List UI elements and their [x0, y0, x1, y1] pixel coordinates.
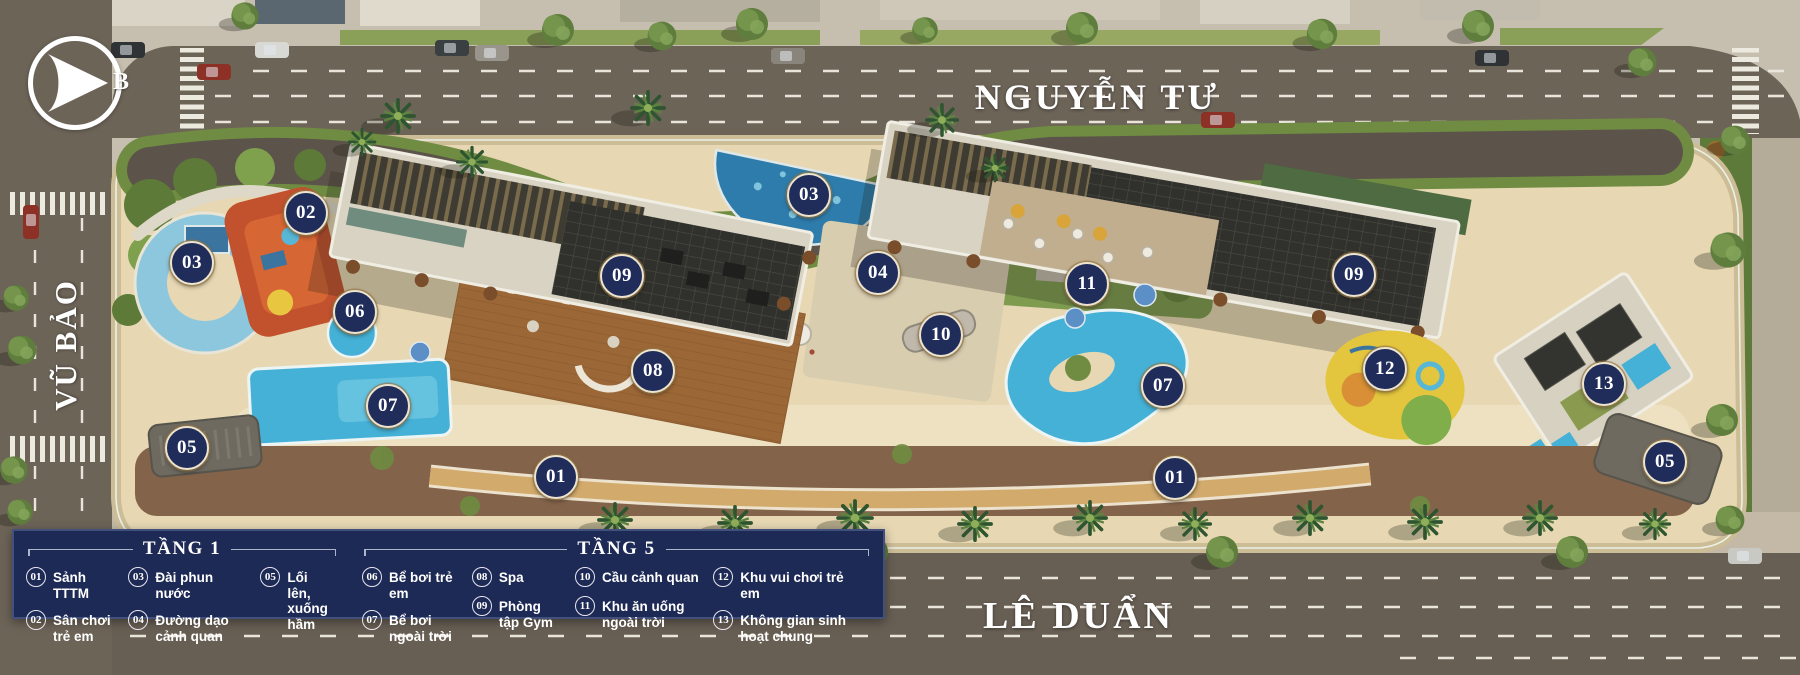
legend-item-number: 10	[575, 567, 595, 587]
legend-item-03: 03Đài phun nước	[128, 567, 247, 601]
street-label-nguyen-tu: NGUYỄN TƯ	[975, 76, 1219, 118]
parked-car	[255, 42, 289, 58]
legend-panel: TẦNG 101Sảnh TTTM02Sân chơi trẻ em03Đài …	[12, 529, 885, 619]
parked-car	[23, 205, 39, 239]
street-label-le-duan: LÊ DUẨN	[983, 594, 1174, 638]
legend-item-number: 11	[575, 596, 595, 616]
legend-item-01: 01Sảnh TTTM	[26, 567, 115, 601]
compass: B	[28, 36, 122, 130]
plan-marker-13[interactable]: 13	[1582, 362, 1626, 406]
legend-item-number: 07	[362, 610, 382, 630]
plan-marker-08[interactable]: 08	[631, 349, 675, 393]
plan-marker-03[interactable]: 03	[787, 173, 831, 217]
legend-item-label: Cầu cảnh quan	[602, 567, 699, 586]
plan-marker-10[interactable]: 10	[919, 313, 963, 357]
plan-marker-07[interactable]: 07	[1141, 364, 1185, 408]
legend-floor-title: TẦNG 1	[143, 538, 221, 560]
plan-marker-06[interactable]: 06	[333, 290, 377, 334]
legend-item-label: Bể bơi trẻ em	[389, 567, 459, 601]
parked-car	[1475, 50, 1509, 66]
legend-item-number: 01	[26, 567, 46, 587]
legend-title-rule	[666, 549, 869, 550]
legend-floor-1: TẦNG 101Sảnh TTTM02Sân chơi trẻ em03Đài …	[14, 531, 350, 617]
parked-car	[475, 45, 509, 61]
parked-car	[771, 48, 805, 64]
plan-marker-01[interactable]: 01	[534, 455, 578, 499]
plan-marker-03[interactable]: 03	[170, 241, 214, 285]
legend-item-label: Không gian sinh hoạt chung	[740, 610, 862, 644]
legend-item-label: Bể bơi ngoài trời	[389, 610, 459, 644]
legend-title-rule	[28, 549, 133, 550]
parked-car	[1728, 548, 1762, 564]
legend-item-label: Đường dạo cảnh quan	[155, 610, 247, 644]
legend-item-number: 12	[713, 567, 733, 587]
legend-item-number: 05	[260, 567, 280, 587]
plan-marker-05[interactable]: 05	[165, 426, 209, 470]
plan-marker-02[interactable]: 02	[284, 191, 328, 235]
legend-floor-title: TẦNG 5	[577, 538, 655, 560]
legend-floor-5: TẦNG 506Bể bơi trẻ em07Bể bơi ngoài trời…	[350, 531, 883, 617]
compass-arrow-icon	[28, 36, 122, 130]
legend-item-number: 03	[128, 567, 148, 587]
legend-item-13: 13Không gian sinh hoạt chung	[713, 610, 862, 644]
legend-item-number: 06	[362, 567, 382, 587]
plan-marker-11[interactable]: 11	[1065, 262, 1109, 306]
masterplan-canvas: B NGUYỄN TƯ VŨ BẢO LÊ DUẨN 0203030904061…	[0, 0, 1800, 675]
legend-item-10: 10Cầu cảnh quan	[575, 567, 700, 587]
parked-car	[435, 40, 469, 56]
plan-marker-12[interactable]: 12	[1363, 347, 1407, 391]
legend-item-09: 09Phòng tập Gym	[472, 596, 562, 630]
legend-item-12: 12Khu vui chơi trẻ em	[713, 567, 862, 601]
plan-marker-05[interactable]: 05	[1643, 440, 1687, 484]
legend-item-label: Đài phun nước	[155, 567, 247, 601]
plan-marker-09[interactable]: 09	[600, 254, 644, 298]
legend-item-number: 02	[26, 610, 46, 630]
legend-item-05: 05Lối lên, xuống hầm	[260, 567, 329, 632]
plan-marker-01[interactable]: 01	[1153, 456, 1197, 500]
plan-marker-07[interactable]: 07	[366, 384, 410, 428]
street-label-vu-bao: VŨ BẢO	[48, 279, 84, 411]
legend-title-rule	[364, 549, 567, 550]
legend-item-label: Phòng tập Gym	[499, 596, 562, 630]
legend-item-label: Lối lên, xuống hầm	[287, 567, 329, 632]
parked-car	[197, 64, 231, 80]
legend-item-11: 11Khu ăn uống ngoài trời	[575, 596, 700, 630]
plan-marker-09[interactable]: 09	[1332, 253, 1376, 297]
legend-item-08: 08Spa	[472, 567, 562, 587]
legend-item-label: Sân chơi trẻ em	[53, 610, 115, 644]
legend-item-06: 06Bể bơi trẻ em	[362, 567, 459, 601]
legend-item-label: Khu ăn uống ngoài trời	[602, 596, 700, 630]
legend-item-label: Sảnh TTTM	[53, 567, 115, 601]
legend-item-04: 04Đường dạo cảnh quan	[128, 610, 247, 644]
legend-item-02: 02Sân chơi trẻ em	[26, 610, 115, 644]
legend-item-label: Khu vui chơi trẻ em	[740, 567, 862, 601]
legend-item-07: 07Bể bơi ngoài trời	[362, 610, 459, 644]
legend-item-number: 08	[472, 567, 492, 587]
legend-item-label: Spa	[499, 567, 524, 586]
legend-item-number: 09	[472, 596, 492, 616]
plan-marker-04[interactable]: 04	[856, 251, 900, 295]
legend-item-number: 13	[713, 610, 733, 630]
legend-item-number: 04	[128, 610, 148, 630]
compass-north-label: B	[113, 69, 129, 96]
legend-title-rule	[231, 549, 336, 550]
